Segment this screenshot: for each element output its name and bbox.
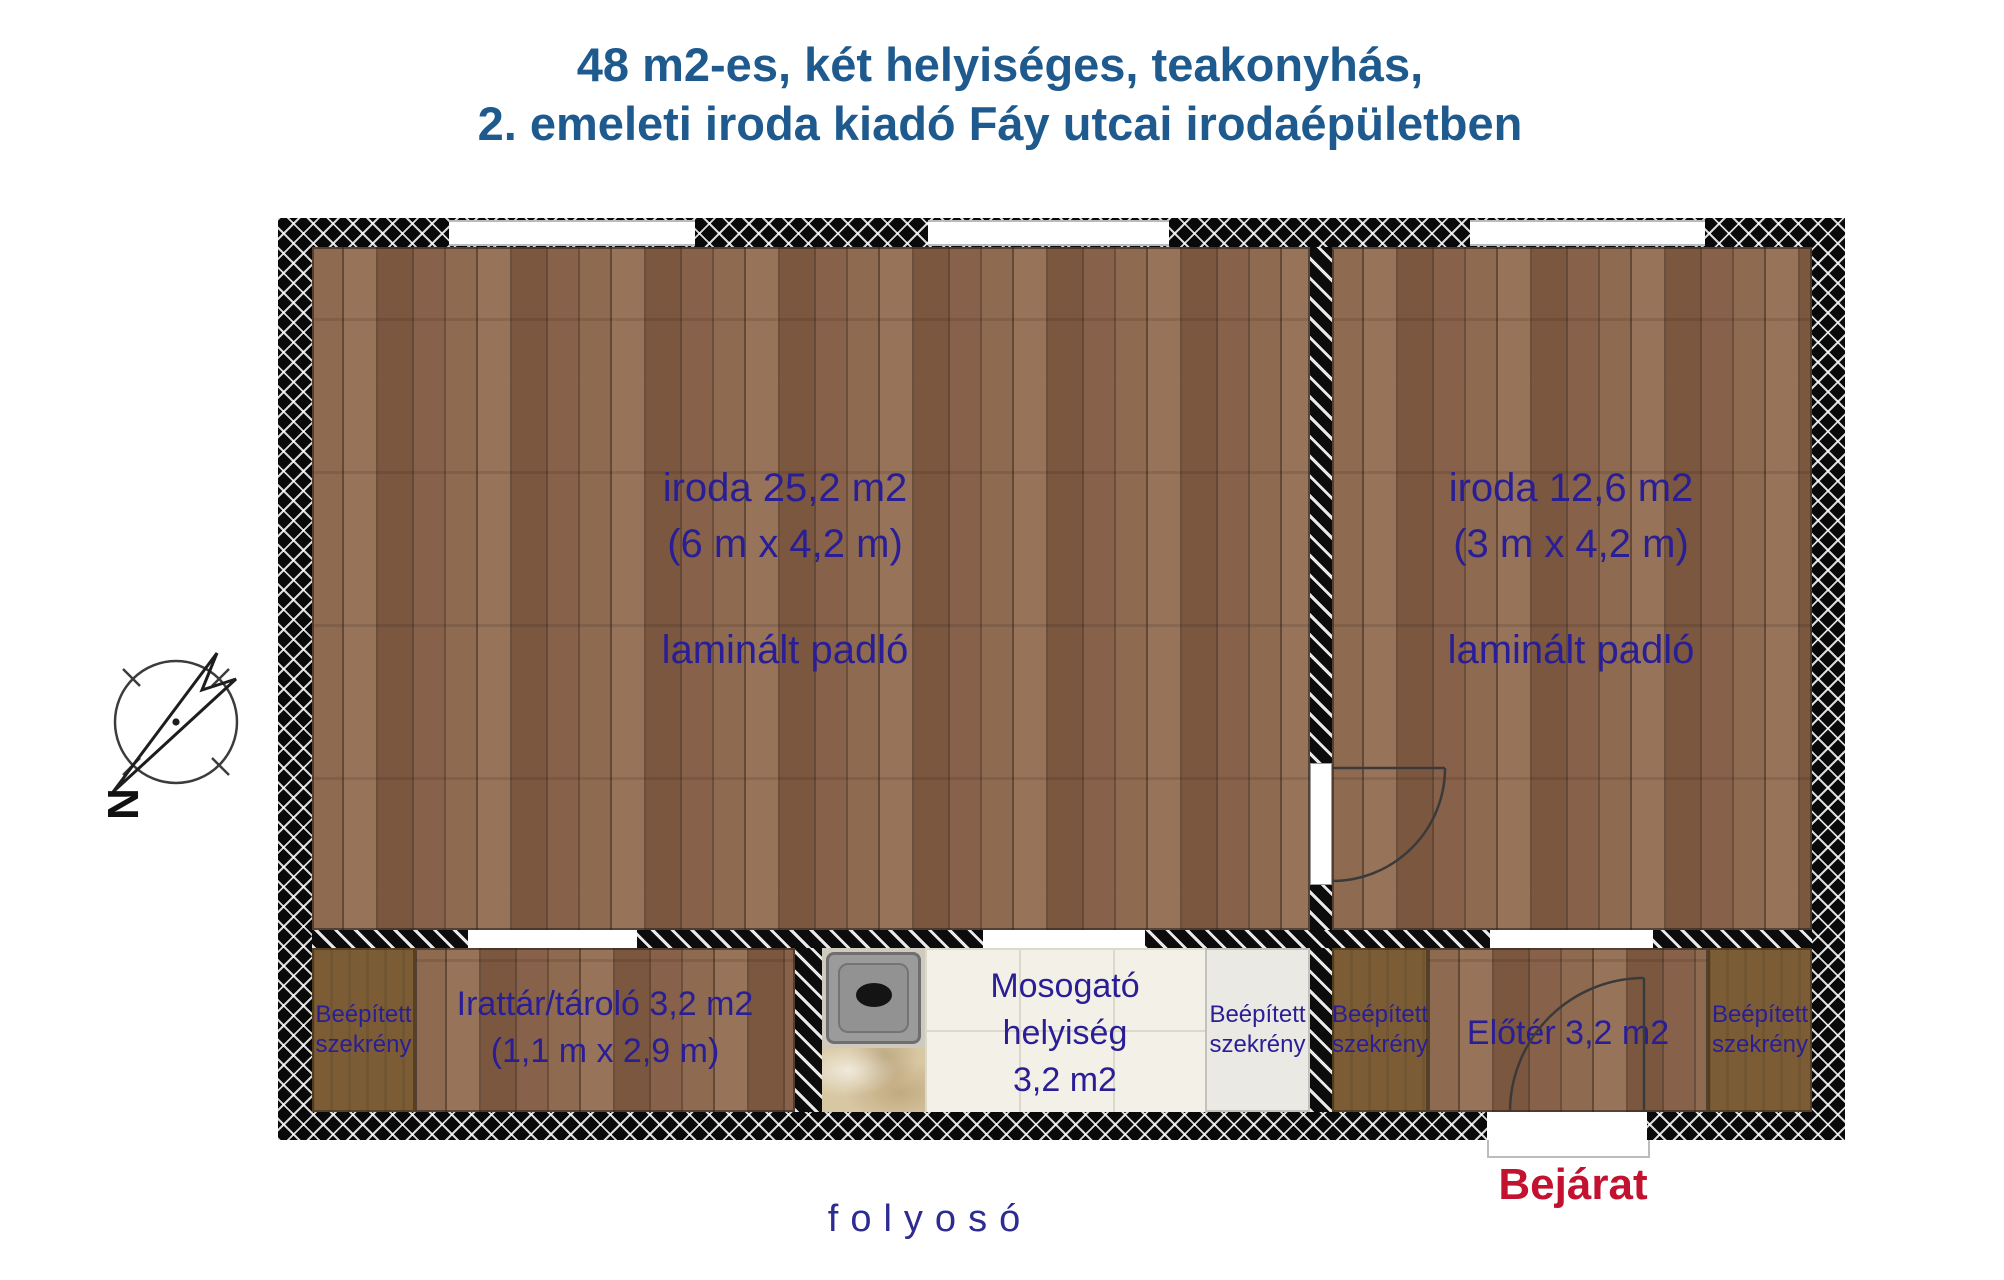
floorplan: Beépített szekrény Beépített szekrény Be… xyxy=(278,218,1845,1140)
cabinet-label-line1: Beépített xyxy=(1209,1000,1305,1030)
corridor-label: folyosó xyxy=(690,1198,1170,1241)
sink-icon xyxy=(826,952,921,1044)
door-opening-hall xyxy=(1490,930,1653,948)
entrance-opening xyxy=(1487,1112,1647,1140)
kitchen-name-line1: Mosogató xyxy=(925,963,1205,1010)
floorplan-page: 48 m2-es, két helyiséges, teakonyhás, 2.… xyxy=(0,0,2004,1280)
built-in-cabinet-left: Beépített szekrény xyxy=(312,948,415,1112)
compass-north-letter: N xyxy=(98,788,147,820)
cabinet-label-line1: Beépített xyxy=(1332,1000,1428,1030)
kitchen-name-line2: helyiség xyxy=(925,1010,1205,1057)
cabinet-label-line1: Beépített xyxy=(1712,1000,1808,1030)
window-office-left-2 xyxy=(928,220,1169,246)
window-office-left-1 xyxy=(449,220,695,246)
room-storage-text: Irattár/tároló 3,2 m2 (1,1 m x 2,9 m) xyxy=(415,981,795,1075)
cabinet-label-line2: szekrény xyxy=(315,1030,411,1060)
compass-icon: N xyxy=(78,632,274,832)
room-hall-text: Előtér 3,2 m2 xyxy=(1428,1010,1708,1057)
office-left-dimensions: (6 m x 4,2 m) xyxy=(575,516,995,572)
page-title: 48 m2-es, két helyiséges, teakonyhás, 2.… xyxy=(100,36,1900,154)
room-kitchen-text: Mosogató helyiség 3,2 m2 xyxy=(925,963,1205,1104)
storage-name: Irattár/tároló 3,2 m2 xyxy=(415,981,795,1028)
kitchen-area: 3,2 m2 xyxy=(925,1057,1205,1104)
page-title-line2: 2. emeleti iroda kiadó Fáy utcai irodaép… xyxy=(100,95,1900,154)
entrance-threshold xyxy=(1487,1140,1650,1158)
door-opening-storage xyxy=(468,930,637,948)
kitchen-sink-counter xyxy=(822,948,925,1048)
hall-name: Előtér 3,2 m2 xyxy=(1428,1010,1708,1057)
room-office-left-text: iroda 25,2 m2 (6 m x 4,2 m) laminált pad… xyxy=(575,460,995,678)
built-in-cabinet-hall-right: Beépített szekrény xyxy=(1708,948,1812,1112)
page-title-line1: 48 m2-es, két helyiséges, teakonyhás, xyxy=(100,36,1900,95)
storage-dimensions: (1,1 m x 2,9 m) xyxy=(415,1028,795,1075)
wall-storage-kitchen xyxy=(795,948,822,1112)
window-office-right xyxy=(1470,220,1705,246)
door-opening-kitchen xyxy=(983,930,1145,948)
office-left-name: iroda 25,2 m2 xyxy=(575,460,995,516)
kitchen-marble-floor xyxy=(822,1048,925,1112)
entrance-label: Bejárat xyxy=(1418,1160,1728,1210)
room-office-right-text: iroda 12,6 m2 (3 m x 4,2 m) laminált pad… xyxy=(1361,460,1781,678)
built-in-cabinet-hall-left: Beépített szekrény xyxy=(1332,948,1428,1112)
cabinet-label-line2: szekrény xyxy=(1209,1030,1305,1060)
office-right-dimensions: (3 m x 4,2 m) xyxy=(1361,516,1781,572)
cabinet-label-line2: szekrény xyxy=(1332,1030,1428,1060)
built-in-cabinet-kitchen: Beépített szekrény xyxy=(1205,948,1310,1112)
door-opening-between-offices xyxy=(1310,763,1332,885)
office-right-floor-type: laminált padló xyxy=(1361,622,1781,678)
cabinet-label-line2: szekrény xyxy=(1712,1030,1808,1060)
cabinet-label-line1: Beépített xyxy=(315,1000,411,1030)
office-right-name: iroda 12,6 m2 xyxy=(1361,460,1781,516)
office-left-floor-type: laminált padló xyxy=(575,622,995,678)
wall-room-divider xyxy=(1310,247,1332,1112)
